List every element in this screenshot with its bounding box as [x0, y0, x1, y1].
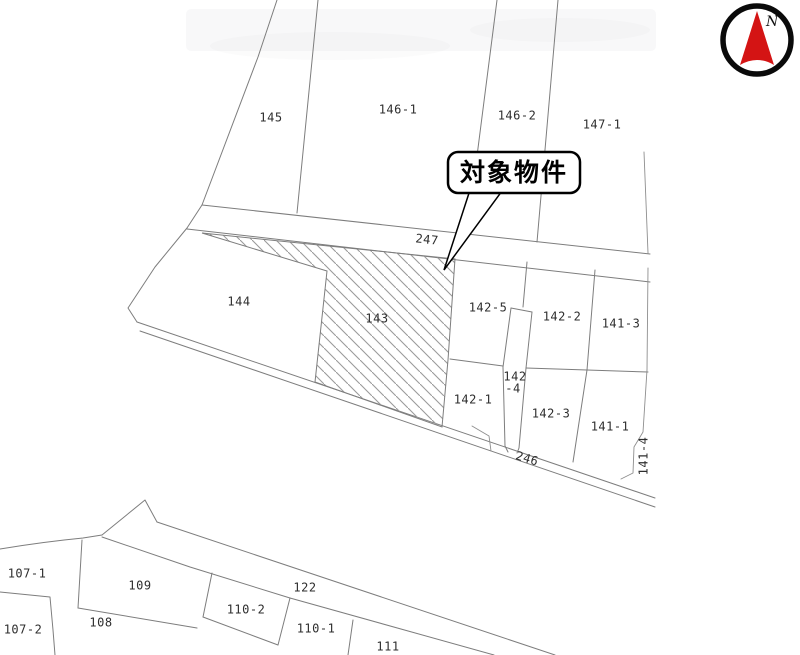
parcel-label-142-1: 142-1 [454, 393, 493, 407]
parcel-110-2-110-1-boundary [278, 598, 290, 645]
parcel-label-146-2: 146-2 [498, 109, 537, 123]
cadastral-map-page: 145146-1146-2147-1247144143142-5142-2141… [0, 0, 800, 655]
lower-left-curve-line [0, 535, 102, 549]
parcel-142-3-141-1-boundary [573, 370, 587, 462]
parcel-label-111: 111 [376, 640, 399, 654]
parcel-109-left-boundary [78, 540, 82, 608]
parcel-142-5-142-2-boundary [523, 262, 527, 307]
parcel-label-142-3: 142-3 [532, 407, 571, 421]
road-122-top-line [157, 522, 555, 655]
parcel-142-2-141-3-boundary [587, 270, 595, 370]
parcel-110-2-bottom-boundary [203, 617, 278, 645]
boundary-spike [102, 500, 157, 535]
parcel-label-143: 143 [365, 312, 388, 326]
callout-label: 対象物件 [460, 158, 568, 187]
parcel-label-107-2: 107-2 [4, 623, 43, 637]
map-edge-left [128, 205, 202, 322]
parcel-label-110-1: 110-1 [297, 622, 336, 636]
parcel-label-141-4: 141-4 [637, 437, 651, 476]
target-property-callout: 対象物件 [444, 152, 580, 270]
parcel-label-142-2: 142-2 [543, 310, 582, 324]
parcel-110-1-111-boundary [348, 620, 353, 655]
road-122-bottom-line [102, 537, 494, 655]
parcel-label-146-1: 146-1 [379, 103, 418, 117]
parcel-label-141-1: 141-1 [591, 420, 630, 434]
parcel-142-5-142-1-boundary [450, 359, 503, 366]
parcel-142-2-142-3-boundary [526, 368, 587, 370]
target-parcel-143-hatched [202, 233, 455, 427]
parcel-label-144: 144 [227, 295, 250, 309]
parcel-label-108: 108 [89, 616, 112, 630]
cadastral-map: 145146-1146-2147-1247144143142-5142-2141… [0, 0, 800, 655]
parcel-label-109: 109 [128, 579, 151, 593]
parcel-label-107-1: 107-1 [8, 567, 47, 581]
parcel-110-2-left-boundary [203, 573, 212, 617]
parcel-label-141-3: 141-3 [602, 317, 641, 331]
map-edge-right-upper [644, 152, 648, 253]
scan-noise [186, 9, 656, 60]
parcel-label-145: 145 [259, 111, 282, 125]
parcel-142-4-top-cap [511, 308, 532, 312]
parcel-label-147-1: 147-1 [583, 118, 622, 132]
parcel-label-122: 122 [293, 581, 316, 595]
callout-pointer [444, 190, 502, 270]
compass-north-indicator: N [723, 6, 791, 74]
parcel-label-246: 246 [514, 448, 540, 468]
compass-n-label: N [765, 14, 779, 30]
parcel-label-142-5: 142-5 [469, 301, 508, 315]
parcel-141-3-141-1-boundary [587, 370, 648, 372]
parcel-label-110-2: 110-2 [227, 603, 266, 617]
parcel-label-m4: -4 [505, 382, 520, 396]
parcel-label-247: 247 [415, 231, 440, 247]
